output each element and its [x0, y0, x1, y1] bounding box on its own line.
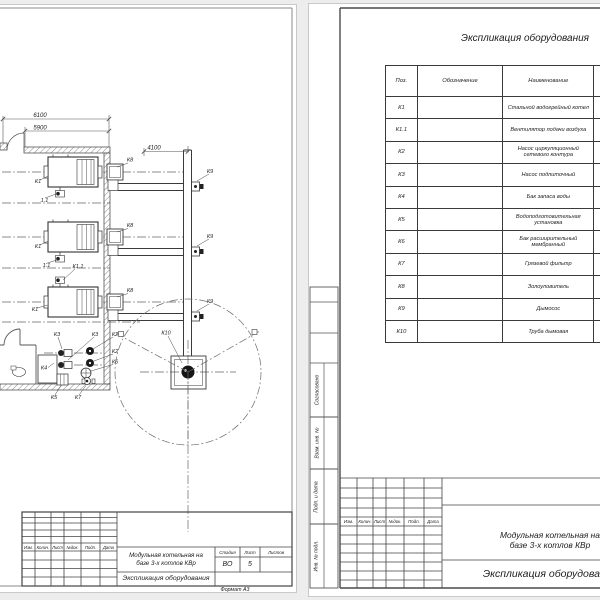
pump-k3b-label: К3	[92, 332, 99, 338]
margin-label-podp-data: Подп. и дата	[310, 469, 324, 524]
main-flue-duct	[184, 150, 192, 356]
rtb-header-list: Лист	[373, 518, 386, 527]
row-designation	[418, 187, 503, 208]
col-header-designation: Обозначение	[418, 66, 503, 96]
chimney	[171, 356, 206, 389]
rtb-header-izm: Изм.	[340, 518, 357, 527]
table-row: К1Стальной водогрейный котел	[386, 96, 600, 118]
ltb-stage-label: Стадия	[215, 547, 240, 557]
boiler2-label: К1	[35, 244, 41, 250]
row-name: Водоподготовительная установка	[503, 209, 594, 230]
col-header-name: Наименование	[503, 66, 594, 96]
row-name: Бак расширительный мембранный	[503, 231, 594, 252]
fan3-label: К1.1	[73, 264, 84, 270]
row-designation	[418, 231, 503, 252]
ltb-stage-value: ВО	[215, 557, 240, 572]
expansion-tank-k6	[81, 368, 91, 378]
pump-k3a-label: К3	[54, 332, 61, 338]
margin-label-inv-podl: Инв. № подл.	[310, 524, 324, 588]
ltb-header-data: Дата	[100, 544, 117, 552]
row-designation	[418, 142, 503, 163]
boiler1-label: К1	[35, 179, 41, 185]
row-name: Бак запаса воды	[503, 187, 594, 208]
entrance-door	[7, 133, 24, 150]
row-designation	[418, 97, 503, 118]
ltb-project-title: Модульная котельная на базе 3-х котлов К…	[117, 547, 215, 572]
dim-6100: 6100	[33, 113, 47, 119]
exhauster1-label: К9	[207, 169, 213, 175]
pump-k2a-label: К2	[112, 332, 118, 338]
ltb-header-ndok: №док.	[64, 544, 81, 552]
row-name: Грязевой фильтр	[503, 254, 594, 275]
dim-5900: 5900	[33, 126, 47, 132]
row-pos: К6	[386, 231, 418, 252]
rtb-doc-title: Экспликация оборудования	[430, 560, 600, 587]
row-pos: К7	[386, 254, 418, 275]
row-pos: К4	[386, 187, 418, 208]
water-treatment-k5	[57, 374, 68, 385]
row-designation	[418, 321, 503, 342]
makeup-pumps-k3	[58, 350, 72, 369]
flue-system	[107, 150, 204, 356]
row-pos: К1	[386, 97, 418, 118]
treatment-label: К5	[51, 395, 58, 401]
row-pos: К2	[386, 142, 418, 163]
row-name: Золоуловитель	[503, 276, 594, 297]
exhauster2-label: К9	[207, 234, 213, 240]
exhauster3-label: К9	[207, 299, 213, 305]
table-header-row: Поз. Обозначение Наименование	[386, 66, 600, 96]
ltb-sheets-label: Листов	[260, 547, 292, 557]
margin-label-vzam-inv: Взам. инв. №	[310, 417, 324, 469]
table-row: К4Бак запаса воды	[386, 186, 600, 208]
table-row: К5Водоподготовительная установка	[386, 208, 600, 230]
col-header-extra	[594, 66, 600, 96]
table-title: Экспликация оборудования	[420, 33, 600, 44]
row-name: Насос подпиточный	[503, 164, 594, 185]
ltb-sheet-label: Лист	[240, 547, 260, 557]
table-row: К7Грязевой фильтр	[386, 253, 600, 275]
table-row: К1.1Вентилятор подачи воздуха	[386, 118, 600, 140]
table-row: К6Бак расширительный мембранный	[386, 230, 600, 252]
row-name: Насос циркуляционный сетевого контура	[503, 142, 594, 163]
row-pos: К1.1	[386, 119, 418, 140]
rtb-header-ndok: №док.	[386, 518, 404, 527]
row-name: Вентилятор подачи воздуха	[503, 119, 594, 140]
equipment-table: Поз. Обозначение Наименование К1Стальной…	[385, 65, 600, 343]
ash-catcher3-label: К8	[127, 288, 134, 294]
expansion-label: К6	[112, 360, 119, 366]
fan2-label: 1.1	[43, 263, 51, 269]
boilers	[44, 155, 102, 318]
mud-filter-k7	[82, 378, 95, 385]
row-designation	[418, 299, 503, 320]
rtb-project-title: Модульная котельная на базе 3-х котлов К…	[430, 524, 600, 556]
rtb-header-podp: Подп.	[404, 518, 424, 527]
network-pumps-k2	[86, 347, 94, 367]
ltb-header-izm: Изм.	[22, 544, 35, 552]
filter-label: К7	[75, 395, 82, 401]
ash-catcher1-label: К8	[127, 158, 134, 164]
pump-k2b-label: К2	[112, 349, 118, 355]
table-row: К3Насос подпиточный	[386, 163, 600, 185]
row-designation	[418, 276, 503, 297]
boiler3-label: К1	[32, 307, 38, 313]
ltb-sheet-value: 5	[240, 557, 260, 572]
table-row: К8Золоуловитель	[386, 275, 600, 297]
row-name: Труба дымовая	[503, 321, 594, 342]
drawing-viewer: { "project": { "line1": "Модульная котел…	[0, 0, 600, 600]
axis-lines	[2, 172, 236, 532]
tank-label: К4	[41, 366, 47, 372]
ltb-sheets-value	[260, 557, 292, 572]
ltb-header-podp: Подп.	[81, 544, 100, 552]
col-header-pos: Поз.	[386, 66, 418, 96]
ltb-header-kolich: Колич.	[35, 544, 51, 552]
dim-4100: 4100	[147, 146, 161, 152]
rtb-header-kolich: Колич.	[357, 518, 373, 527]
row-designation	[418, 254, 503, 275]
table-row: К2Насос циркуляционный сетевого контура	[386, 141, 600, 163]
chimney-label: К10	[161, 331, 171, 337]
fan1-label: 1.1	[41, 198, 49, 204]
row-pos: К5	[386, 209, 418, 230]
row-pos: К3	[386, 164, 418, 185]
row-pos: К10	[386, 321, 418, 342]
row-designation	[418, 164, 503, 185]
row-pos: К9	[386, 299, 418, 320]
row-name: Дымосос	[503, 299, 594, 320]
row-designation	[418, 209, 503, 230]
row-designation	[418, 119, 503, 140]
format-note: Формат А3	[185, 587, 285, 594]
ash-catcher2-label: К8	[127, 223, 134, 229]
row-pos: К8	[386, 276, 418, 297]
margin-label-approved: Согласовано	[310, 363, 324, 417]
ltb-header-list: Лист	[51, 544, 64, 552]
table-row: К9Дымосос	[386, 298, 600, 320]
table-row: К10Труба дымовая	[386, 320, 600, 342]
row-name: Стальной водогрейный котел	[503, 97, 594, 118]
ltb-doc-title: Экспликация оборудования	[117, 571, 215, 586]
